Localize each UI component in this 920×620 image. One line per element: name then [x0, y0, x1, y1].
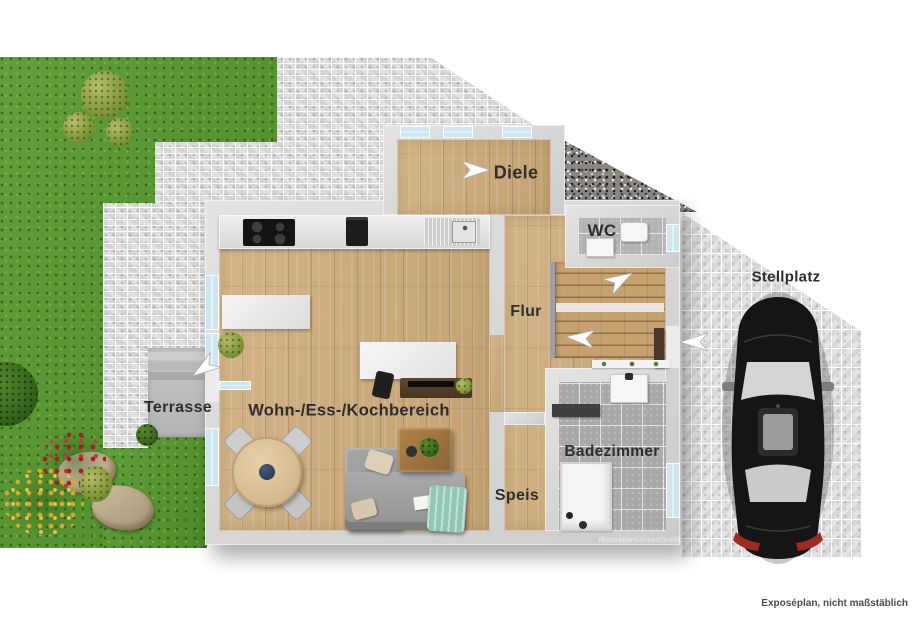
plant-icon: [218, 332, 244, 358]
window: [205, 275, 219, 330]
room-label-badezimmer: Badezimmer: [564, 443, 659, 461]
window: [400, 126, 430, 138]
car-sunroof: [763, 414, 793, 450]
kitchen-island: [360, 342, 456, 379]
direction-arrow-icon: [462, 160, 490, 180]
room-label-terrasse: Terrasse: [144, 399, 212, 417]
window: [666, 463, 680, 518]
plant-icon: [420, 438, 439, 457]
window: [502, 126, 532, 138]
doorway-living-flur: [490, 335, 504, 412]
stair-side-wall: [550, 262, 555, 358]
terrace-door-leaf: [219, 381, 251, 390]
table-vase: [259, 464, 275, 480]
window: [443, 126, 473, 138]
window: [666, 224, 680, 252]
direction-arrow-icon: [680, 332, 708, 352]
car-rear-window: [745, 465, 811, 503]
sink-basin: [452, 221, 476, 243]
room-label-wc: WC: [588, 221, 617, 241]
kitchen-sideboard: [222, 295, 310, 329]
bush-icon: [136, 424, 158, 446]
throw-blanket: [426, 485, 467, 534]
bush-icon: [81, 71, 129, 119]
bath-shelf: [552, 404, 600, 417]
floor-plan-scene: Illustration©immoGrafik Diele WC Flur Wo…: [0, 0, 920, 620]
kitchen-appliance: [346, 217, 368, 246]
bath-faucet: [625, 373, 633, 380]
illustrator-watermark: Illustration©immoGrafik: [588, 535, 692, 544]
room-label-wohnbereich: Wohn-/Ess-/Kochbereich: [248, 402, 450, 421]
room-label-flur: Flur: [510, 303, 541, 321]
cooktop: [243, 219, 295, 246]
car-top-view: [720, 288, 836, 566]
room-label-speis: Speis: [495, 487, 539, 505]
bush-icon: [106, 118, 134, 146]
stair-landing: [556, 303, 664, 312]
shower-drain: [579, 521, 587, 529]
toilet: [620, 222, 648, 242]
bush-icon: [80, 466, 112, 502]
room-label-diele: Diele: [494, 163, 539, 184]
shower: [560, 462, 612, 531]
tv: [408, 381, 454, 387]
pantry-top-wall: [504, 412, 545, 425]
plant-icon: [456, 378, 472, 394]
bowl: [406, 446, 417, 457]
room-label-stellplatz: Stellplatz: [752, 269, 821, 286]
bath-ledge: [592, 360, 670, 368]
direction-arrow-icon: [565, 327, 595, 349]
bush-icon: [63, 112, 94, 143]
car-windshield: [741, 362, 815, 400]
yellow-flowers-icon: [4, 468, 84, 536]
window: [205, 428, 219, 486]
shower-fixture: [566, 512, 573, 519]
footer-note: Exposéplan, nicht maßstäblich: [761, 598, 908, 609]
